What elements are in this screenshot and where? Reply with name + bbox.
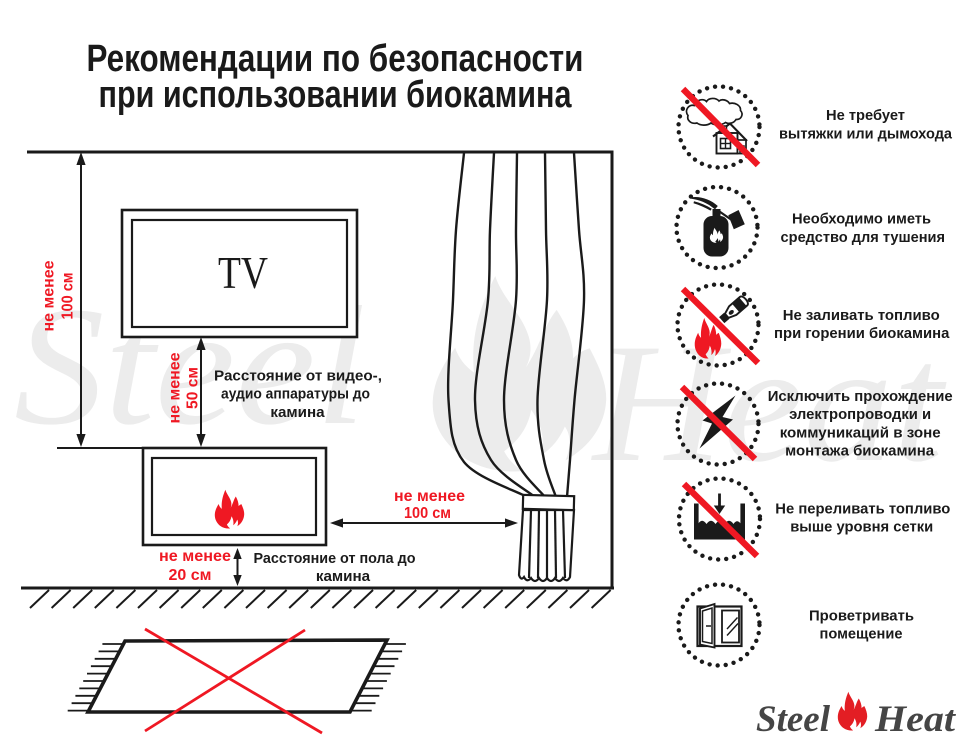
svg-text:вытяжки или дымохода: вытяжки или дымохода xyxy=(779,125,953,142)
svg-text:не менее: не менее xyxy=(159,548,231,565)
svg-text:Расстояние от видео-,: Расстояние от видео-, xyxy=(214,368,382,385)
svg-text:Не требует: Не требует xyxy=(826,107,906,124)
svg-text:монтажа биокамина: монтажа биокамина xyxy=(785,443,935,460)
svg-text:при использовании биокамина: при использовании биокамина xyxy=(99,74,573,116)
svg-text:100 см: 100 см xyxy=(404,505,451,522)
svg-text:не менее: не менее xyxy=(41,260,58,331)
svg-text:TV: TV xyxy=(218,247,268,298)
svg-text:камина: камина xyxy=(270,404,325,421)
svg-text:Исключить прохождение: Исключить прохождение xyxy=(768,388,953,405)
svg-text:Heat: Heat xyxy=(874,699,957,740)
svg-text:аудио аппаратуры до: аудио аппаратуры до xyxy=(221,386,370,403)
svg-text:средство для тушения: средство для тушения xyxy=(781,229,946,246)
svg-text:электропроводки и: электропроводки и xyxy=(789,406,931,423)
svg-text:коммуникаций в зоне: коммуникаций в зоне xyxy=(780,424,941,441)
svg-text:100 см: 100 см xyxy=(60,273,77,320)
svg-text:помещение: помещение xyxy=(820,625,903,642)
svg-text:при горении биокамина: при горении биокамина xyxy=(774,325,950,342)
svg-text:Необходимо иметь: Необходимо иметь xyxy=(792,211,931,228)
svg-text:Steel: Steel xyxy=(756,699,831,740)
svg-text:не менее: не менее xyxy=(394,488,465,505)
svg-text:Не заливать топливо: Не заливать топливо xyxy=(783,307,940,324)
svg-text:50 см: 50 см xyxy=(185,367,202,409)
svg-text:20 см: 20 см xyxy=(169,567,212,584)
svg-text:не менее: не менее xyxy=(167,352,184,423)
svg-text:камина: камина xyxy=(316,568,371,585)
svg-text:Проветривать: Проветривать xyxy=(809,607,914,624)
svg-text:Расстояние от пола до: Расстояние от пола до xyxy=(254,550,416,567)
svg-text:Не переливать топливо: Не переливать топливо xyxy=(775,501,950,518)
svg-text:выше уровня сетки: выше уровня сетки xyxy=(790,519,933,536)
